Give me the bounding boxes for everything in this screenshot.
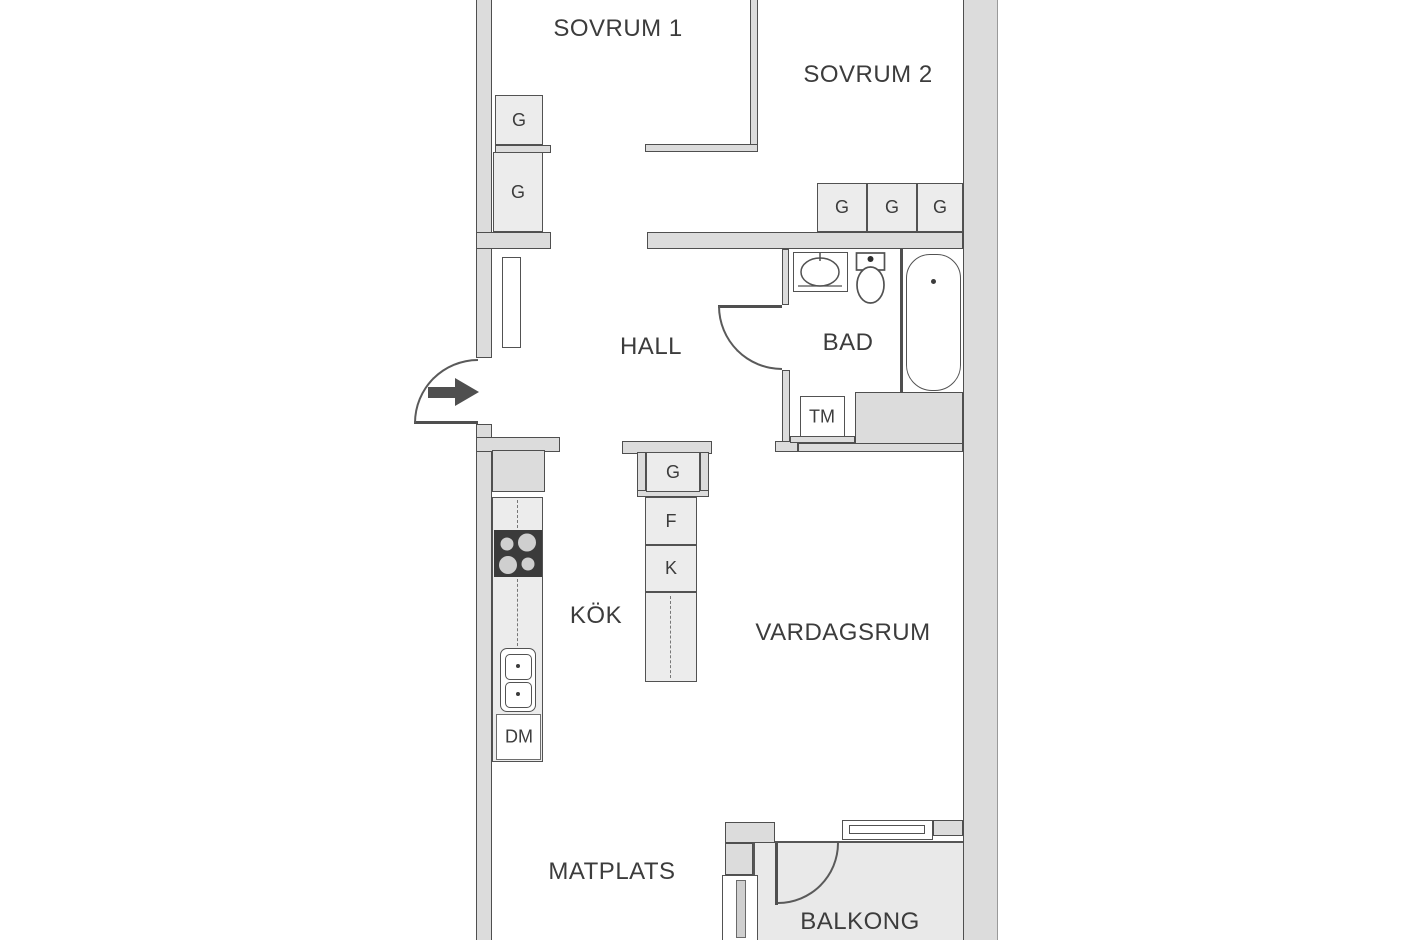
closet-sovrum2-g2: G — [867, 183, 917, 232]
wall-tm-niche-bottom — [790, 436, 855, 443]
kitchen-sink — [500, 648, 536, 712]
wall-bath-west-upper — [782, 249, 789, 305]
bath-sink — [793, 252, 848, 292]
closet-label: G — [511, 182, 525, 203]
room-label-sovrum1: SOVRUM 1 — [553, 15, 682, 43]
wall-right — [963, 0, 998, 940]
closet-label: G — [835, 197, 849, 218]
wall-bathtub-divider — [900, 249, 903, 392]
wall-balcony-north-right — [933, 820, 963, 836]
entrance-arrow-icon — [426, 378, 480, 406]
fridge-label: K — [665, 558, 677, 579]
closet-label: G — [512, 110, 526, 131]
wall-entry-chunk — [492, 450, 545, 492]
appliance-fridge: K — [645, 545, 697, 592]
washing-machine-label: TM — [809, 407, 835, 428]
wall-left-upper — [476, 0, 492, 358]
stove — [494, 530, 542, 577]
counter-centerline-island — [670, 596, 671, 678]
room-label-sovrum2: SOVRUM 2 — [803, 61, 932, 89]
closet-sovrum2-g3: G — [917, 183, 963, 232]
closet-label: G — [885, 197, 899, 218]
closet-sovrum1-g2: G — [493, 152, 543, 232]
wall-sovrum-divider-vertical — [750, 0, 758, 152]
wall-bedrooms-south-right — [647, 232, 963, 249]
room-label-hall: HALL — [620, 333, 682, 361]
vardagsrum-window — [842, 820, 933, 840]
counter-centerline-west-upper — [517, 500, 518, 528]
wall-kitchen-niche-right — [700, 452, 709, 492]
closet-label: G — [933, 197, 947, 218]
closet-sovrum2-g1: G — [817, 183, 867, 232]
wall-left-lower — [476, 424, 492, 940]
wall-bath-west-lower — [782, 370, 790, 443]
wall-balcony-west — [725, 843, 753, 875]
closet-label: G — [666, 462, 680, 483]
room-label-bad: BAD — [823, 329, 874, 357]
matplats-window — [722, 875, 758, 940]
freezer-label: F — [666, 511, 677, 532]
wall-balcony-north — [725, 822, 775, 843]
dishwasher-label: DM — [505, 727, 533, 748]
hall-cabinet — [502, 257, 521, 348]
kitchen-island-counter — [645, 592, 697, 682]
room-label-vardagsrum: VARDAGSRUM — [755, 619, 930, 647]
bathtub — [906, 254, 961, 391]
wall-vardagsrum-north — [798, 443, 963, 452]
floorplan-canvas: G G G G G G F K — [0, 0, 1410, 940]
wall-kitchen-niche-left — [637, 452, 646, 492]
bath-sink-bowl — [794, 253, 846, 290]
closet-sovrum1-g1: G — [495, 95, 543, 145]
room-label-kok: KÖK — [570, 602, 622, 630]
room-label-balkong: BALKONG — [800, 908, 920, 936]
wall-bedrooms-south-left — [476, 232, 551, 249]
bath-door-arc — [718, 306, 782, 370]
wall-sovrum-divider-horizontal — [645, 144, 758, 152]
appliance-freezer: F — [645, 497, 697, 545]
stove-burners — [494, 530, 542, 577]
closet-hall-g: G — [646, 452, 700, 492]
toilet — [855, 251, 887, 306]
counter-centerline-west-mid — [517, 579, 518, 646]
room-label-matplats: MATPLATS — [548, 858, 675, 886]
